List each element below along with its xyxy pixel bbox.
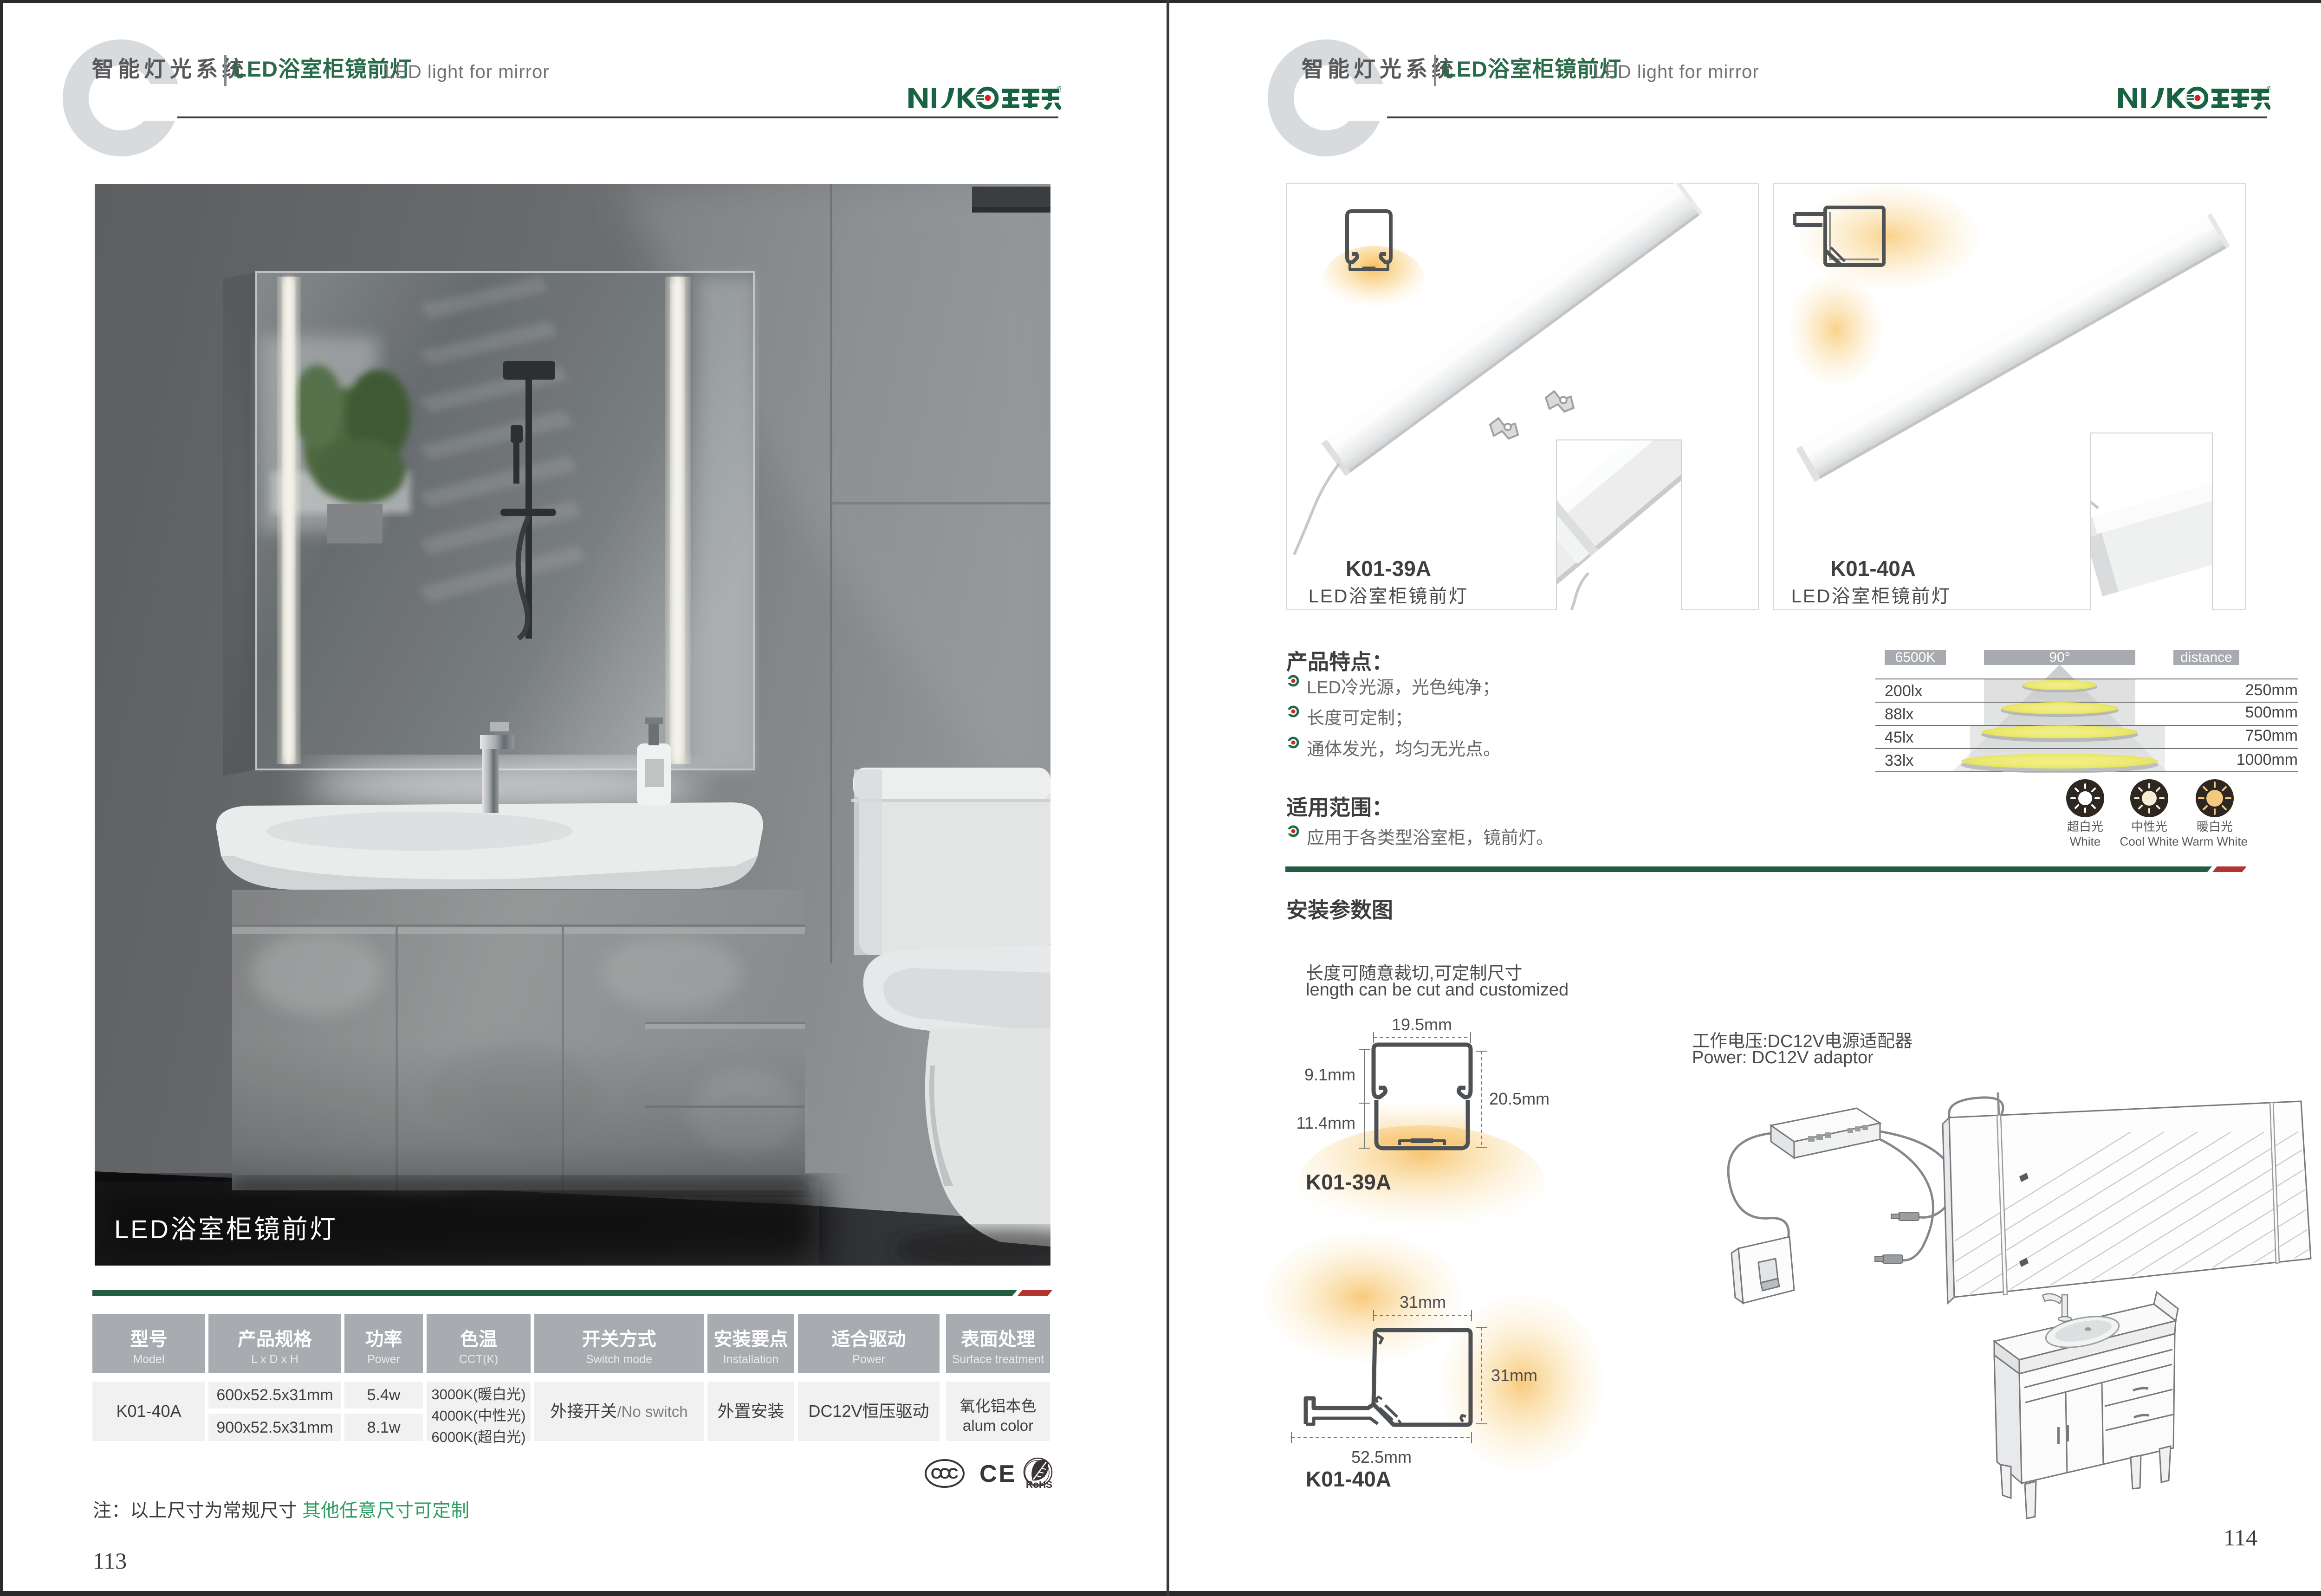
svg-text:9.1mm: 9.1mm: [1304, 1065, 1355, 1084]
svg-text:RoHS: RoHS: [1026, 1480, 1052, 1490]
svg-text:CCC: CCC: [931, 1465, 958, 1482]
svg-text:45lx: 45lx: [1885, 729, 1913, 746]
svg-text:®: ®: [1057, 85, 1061, 93]
svg-text:52.5mm: 52.5mm: [1351, 1447, 1412, 1467]
svg-text:1000mm: 1000mm: [2237, 751, 2298, 769]
svg-text:200lx: 200lx: [1885, 682, 1922, 700]
svg-text:88lx: 88lx: [1885, 705, 1913, 723]
svg-text:11.4mm: 11.4mm: [1297, 1113, 1355, 1132]
svg-text:Cool White: Cool White: [2120, 834, 2178, 848]
svg-text:500mm: 500mm: [2245, 704, 2298, 721]
svg-text:250mm: 250mm: [2245, 681, 2298, 699]
svg-text:31mm: 31mm: [1400, 1292, 1446, 1312]
svg-text:90°: 90°: [2049, 650, 2070, 665]
svg-text:中性光: 中性光: [2131, 820, 2167, 834]
svg-text:31mm: 31mm: [1491, 1366, 1537, 1385]
svg-text:White: White: [2070, 834, 2101, 848]
svg-text:20.5mm: 20.5mm: [1489, 1089, 1549, 1108]
svg-text:CE: CE: [979, 1460, 1017, 1487]
svg-text:LED浴室柜镜前灯: LED浴室柜镜前灯: [114, 1215, 337, 1244]
svg-text:19.5mm: 19.5mm: [1392, 1015, 1452, 1034]
svg-text:暖白光: 暖白光: [2197, 820, 2233, 834]
svg-text:33lx: 33lx: [1885, 752, 1913, 769]
svg-text:Warm White: Warm White: [2182, 834, 2248, 848]
svg-text:6500K: 6500K: [1895, 650, 1936, 665]
svg-text:超白光: 超白光: [2067, 820, 2103, 834]
svg-text:750mm: 750mm: [2245, 727, 2298, 744]
svg-text:distance: distance: [2180, 650, 2232, 665]
svg-text:®: ®: [2267, 85, 2270, 93]
